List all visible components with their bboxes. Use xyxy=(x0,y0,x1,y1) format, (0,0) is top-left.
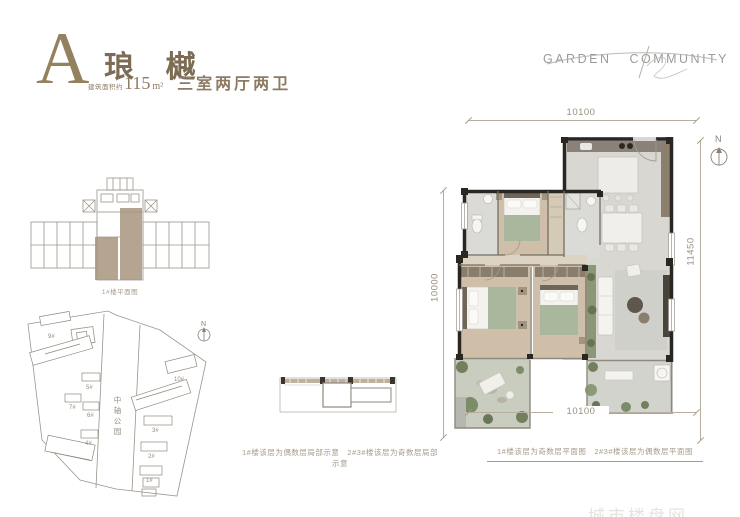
unit-area-line: 建筑面积约 115 m² 三室两厅两卫 xyxy=(88,70,291,94)
area-value: 115 xyxy=(124,73,150,94)
building-label: 2# xyxy=(148,454,155,460)
sketch-right-room xyxy=(351,388,391,402)
building-label: 9# xyxy=(48,334,55,340)
building-label: 5# xyxy=(86,385,93,391)
main-plan-caption: 1#楼该层为奇数层平面图 2#3#楼该层为偶数层平面图 xyxy=(487,446,703,462)
dim-label-right: 11450 xyxy=(686,227,697,277)
area-unit: m² xyxy=(152,81,163,92)
dim-label-left: 10000 xyxy=(430,263,441,313)
logo-script-flourish-icon xyxy=(543,42,721,82)
kitchen-island xyxy=(598,157,638,193)
dim-label-top: 10100 xyxy=(553,107,609,118)
dim-line-right xyxy=(700,140,701,440)
key-plan-caption: 1#楼平面图 xyxy=(25,286,215,296)
building-label: 10# xyxy=(174,377,185,383)
washing-machine xyxy=(654,365,670,381)
dim-line-left xyxy=(443,190,444,437)
main-plan-north-icon: N xyxy=(706,132,732,172)
layout-description: 三室两厅两卫 xyxy=(177,70,291,94)
north-label: N xyxy=(715,134,722,144)
bench xyxy=(605,371,633,380)
dining-table xyxy=(602,213,642,243)
building-label: 6# xyxy=(87,413,94,419)
dining-area xyxy=(602,205,642,251)
unit-outline-sketch xyxy=(278,366,398,418)
building-label: 7# xyxy=(69,405,76,411)
sketch-caption: 1#楼该层为偶数层局部示意 2#3#楼该层为奇数层局部示意 xyxy=(240,447,440,469)
unit-letter: A xyxy=(36,22,89,96)
svg-text:N: N xyxy=(201,321,206,328)
highlighted-unit xyxy=(120,208,142,280)
area-prefix-label: 建筑面积约 xyxy=(88,81,123,91)
building-label: 4# xyxy=(85,441,92,447)
coffee-table xyxy=(627,297,643,313)
park-label: 中轴公园 xyxy=(112,396,123,438)
sofa xyxy=(598,277,613,335)
key-plan-outline xyxy=(31,178,209,280)
site-plan-north-icon: N xyxy=(198,321,210,341)
building-key-plan xyxy=(25,176,215,284)
sketch-center-room xyxy=(323,383,351,407)
watermark: 城市楼盘网 xyxy=(588,502,740,517)
armchair xyxy=(626,264,641,277)
building-label: 3# xyxy=(152,428,159,434)
highlighted-unit-2 xyxy=(95,237,118,280)
building-label: 1# xyxy=(146,478,153,484)
dim-line-top xyxy=(468,120,696,121)
dim-label-bottom: 10100 xyxy=(553,406,609,417)
poster-canvas: A 琅 樾 建筑面积约 115 m² 三室两厅两卫 GARDEN COMMUNI… xyxy=(0,0,740,517)
